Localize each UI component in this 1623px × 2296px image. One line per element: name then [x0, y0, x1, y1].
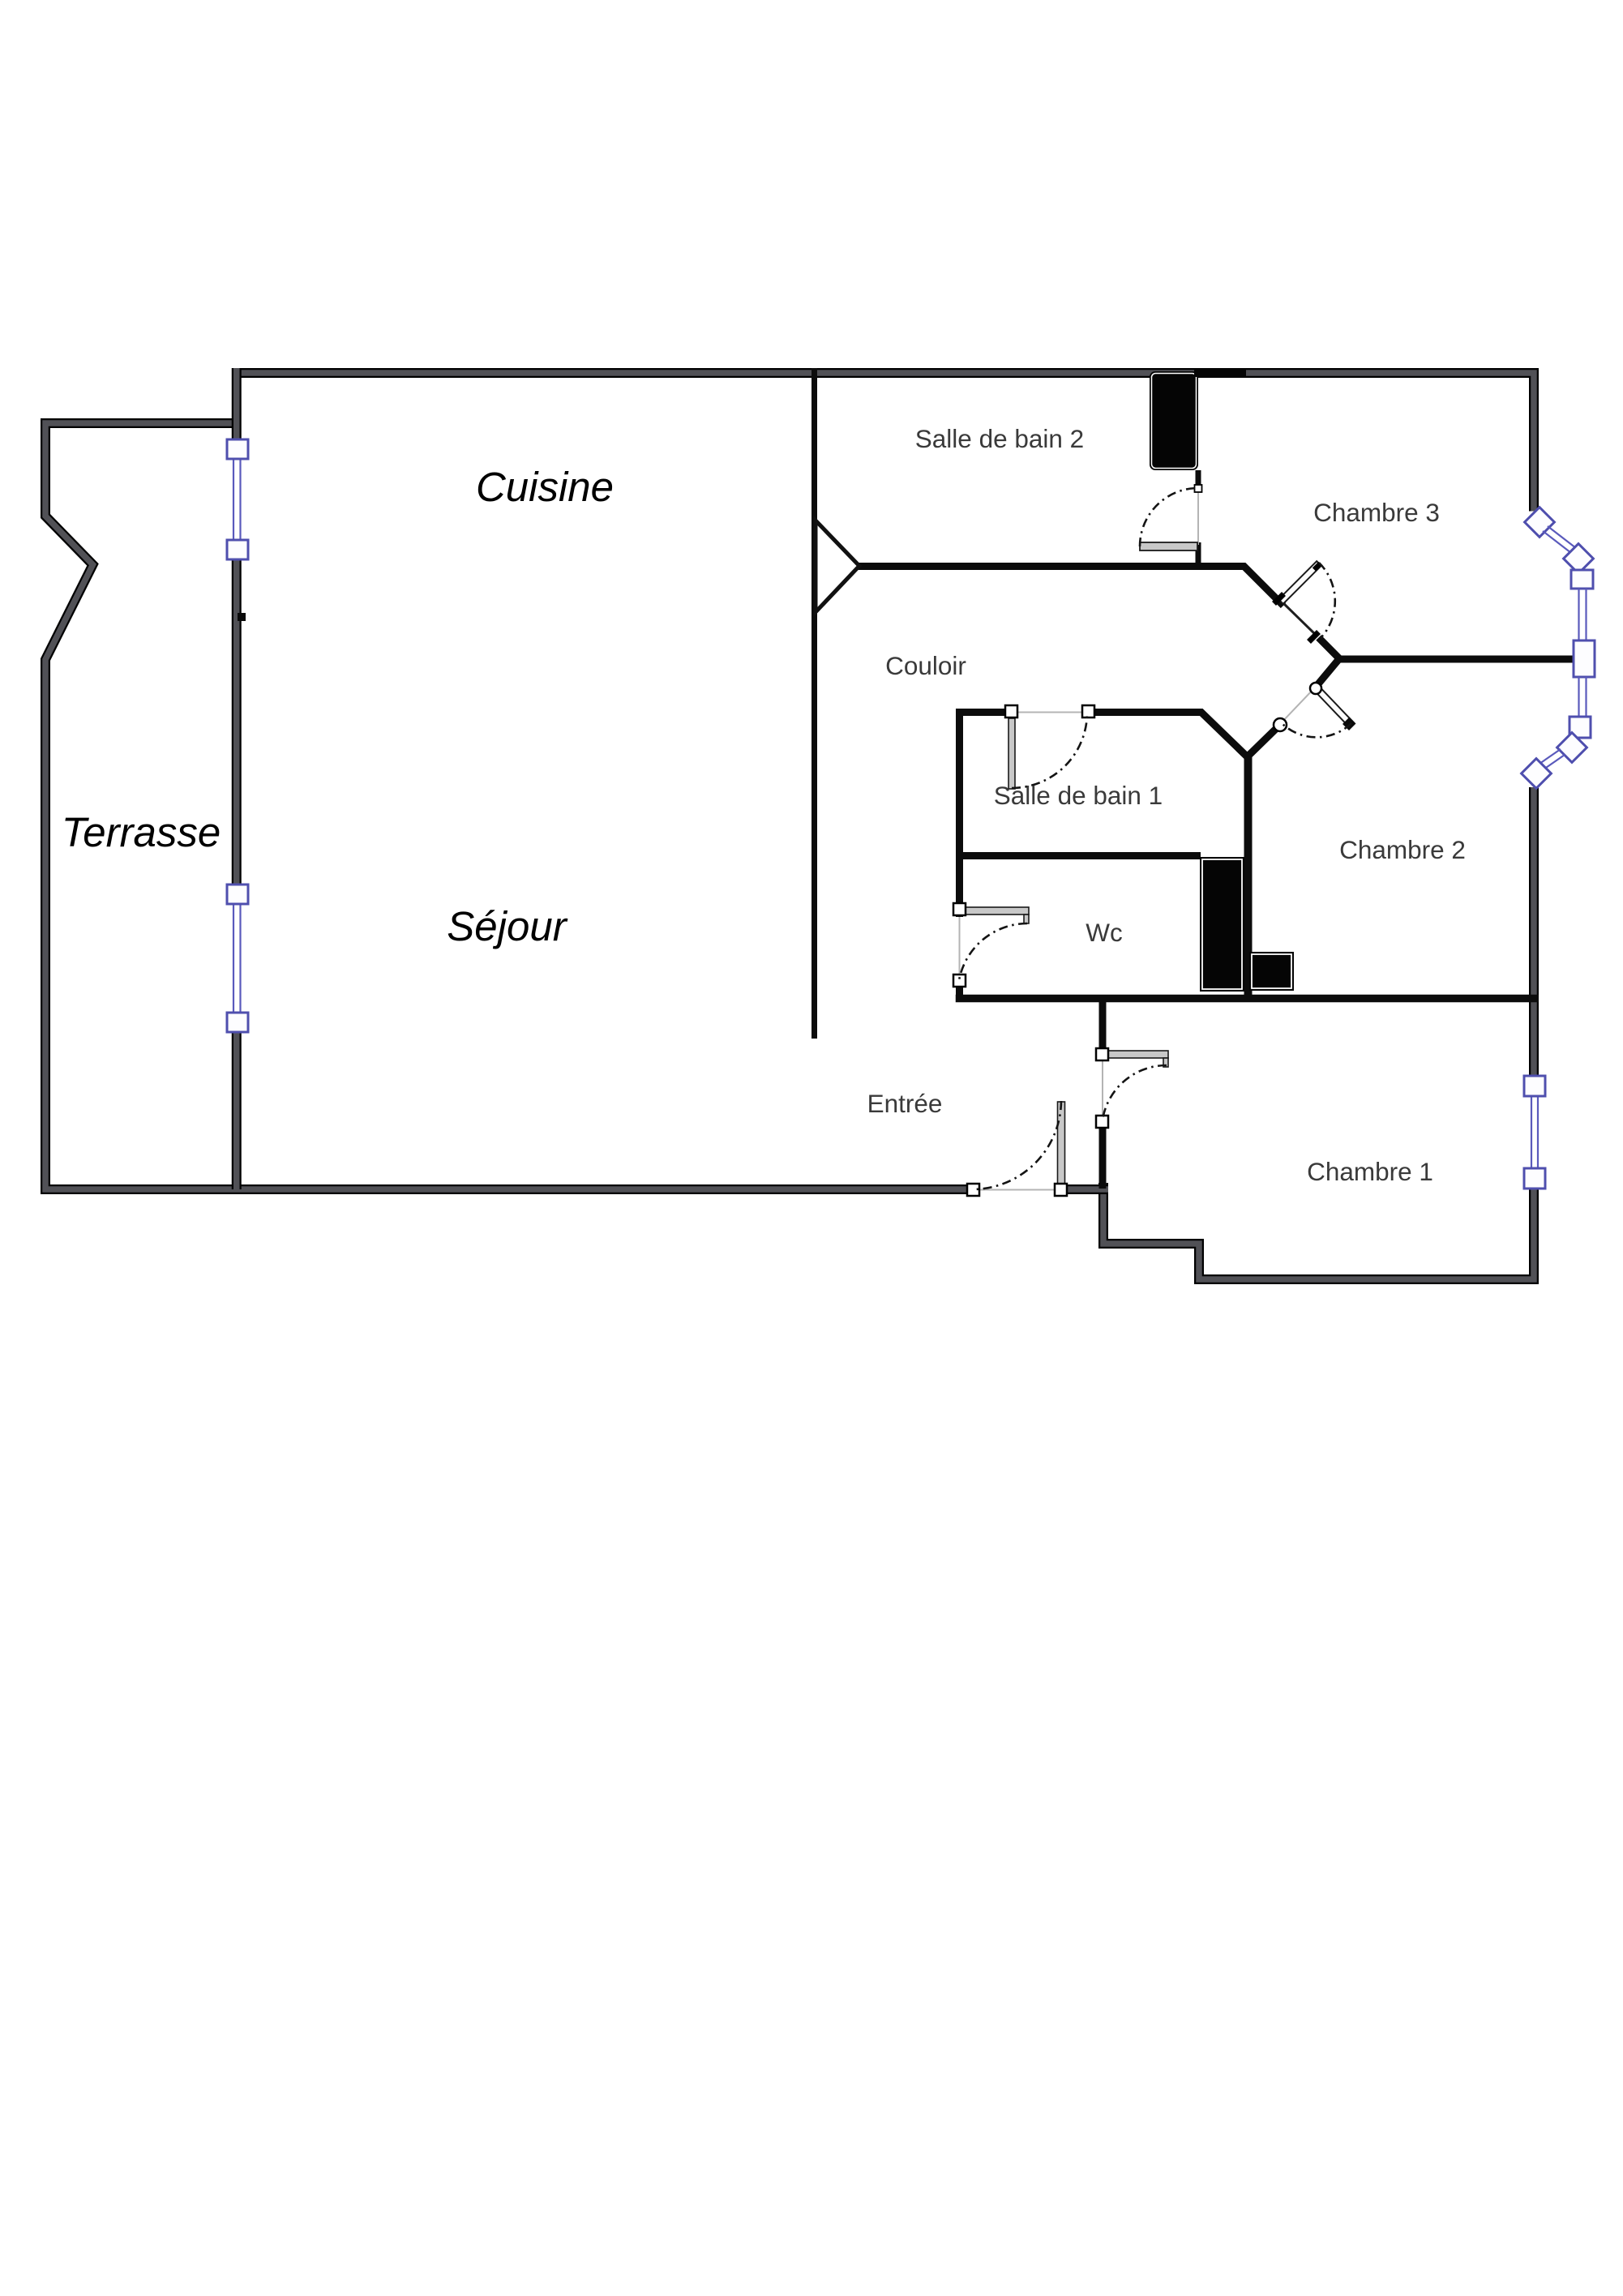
- svg-text:Entrée: Entrée: [867, 1089, 943, 1118]
- svg-text:Chambre 1: Chambre 1: [1307, 1157, 1433, 1186]
- svg-text:Chambre 3: Chambre 3: [1313, 498, 1440, 527]
- svg-text:Salle de bain 2: Salle de bain 2: [915, 424, 1084, 453]
- svg-text:Cuisine: Cuisine: [476, 464, 614, 510]
- svg-text:Salle de bain 1: Salle de bain 1: [994, 781, 1163, 810]
- svg-text:Wc: Wc: [1086, 918, 1122, 947]
- svg-text:Couloir: Couloir: [885, 651, 966, 680]
- svg-text:Séjour: Séjour: [447, 903, 567, 949]
- svg-text:Chambre 2: Chambre 2: [1339, 835, 1466, 864]
- svg-text:Terrasse: Terrasse: [62, 809, 221, 855]
